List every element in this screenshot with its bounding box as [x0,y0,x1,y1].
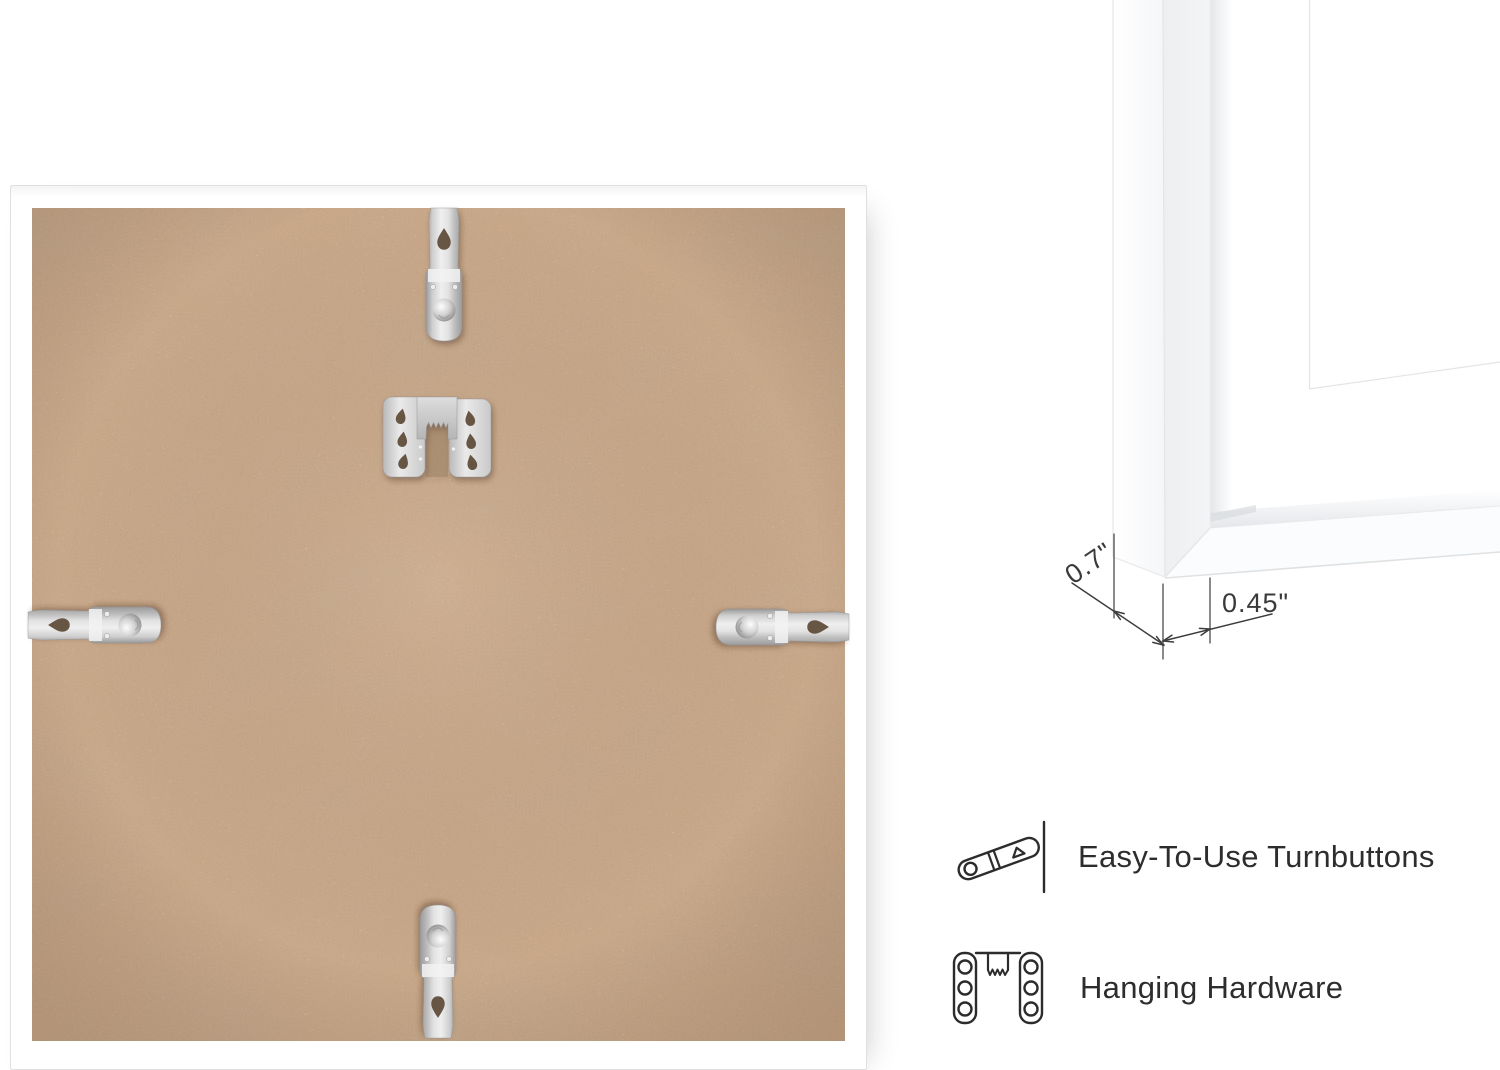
hanging-hardware-icon [952,950,1044,1026]
frame-back-photo [10,185,867,1070]
sawtooth-hanger [383,397,491,477]
turnbutton-bottom [420,905,456,1038]
feature-turnbuttons: Easy-To-Use Turnbuttons [950,820,1435,894]
frame-profile-drawing [1113,0,1500,578]
turnbutton-icon [950,820,1050,894]
turnbutton-right [716,609,849,645]
frame-hardware [11,186,868,1070]
turnbutton-top [426,208,462,341]
feature-label: Easy-To-Use Turnbuttons [1078,839,1435,875]
turnbutton-left [28,607,161,643]
feature-hanging-hardware: Hanging Hardware [952,950,1343,1026]
feature-label: Hanging Hardware [1080,970,1343,1006]
frame-corner-closeup: 0.7" 0.45" [1060,0,1500,690]
face-measurement: 0.45" [1222,588,1289,618]
product-image: 0.7" 0.45" Easy-To-Use Turnbuttons [0,0,1500,1070]
depth-measurement: 0.7" [1060,537,1119,590]
